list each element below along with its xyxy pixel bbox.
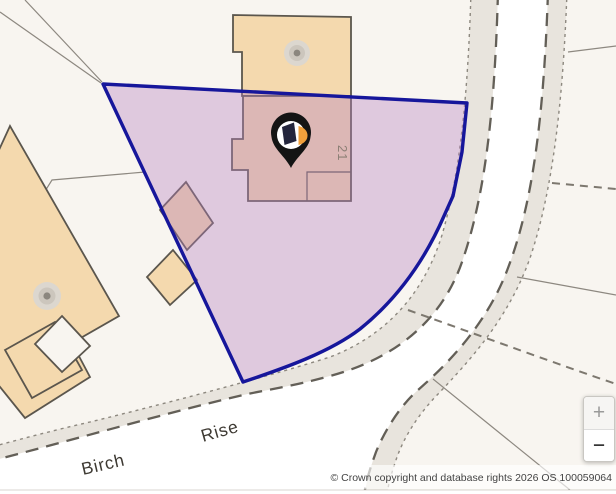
map-bottom-margin (0, 491, 616, 494)
zoom-out-button[interactable]: − (584, 430, 614, 462)
attribution-text: © Crown copyright and database rights 20… (330, 472, 612, 484)
tree-symbol (33, 282, 61, 310)
map-canvas[interactable]: 21 Birch Rise © Crown copyright and data… (0, 0, 616, 494)
zoom-in-button[interactable]: + (584, 397, 614, 430)
zoom-control: + − (583, 396, 615, 462)
tree-symbol (284, 40, 310, 66)
house-number-label: 21 (335, 145, 350, 161)
